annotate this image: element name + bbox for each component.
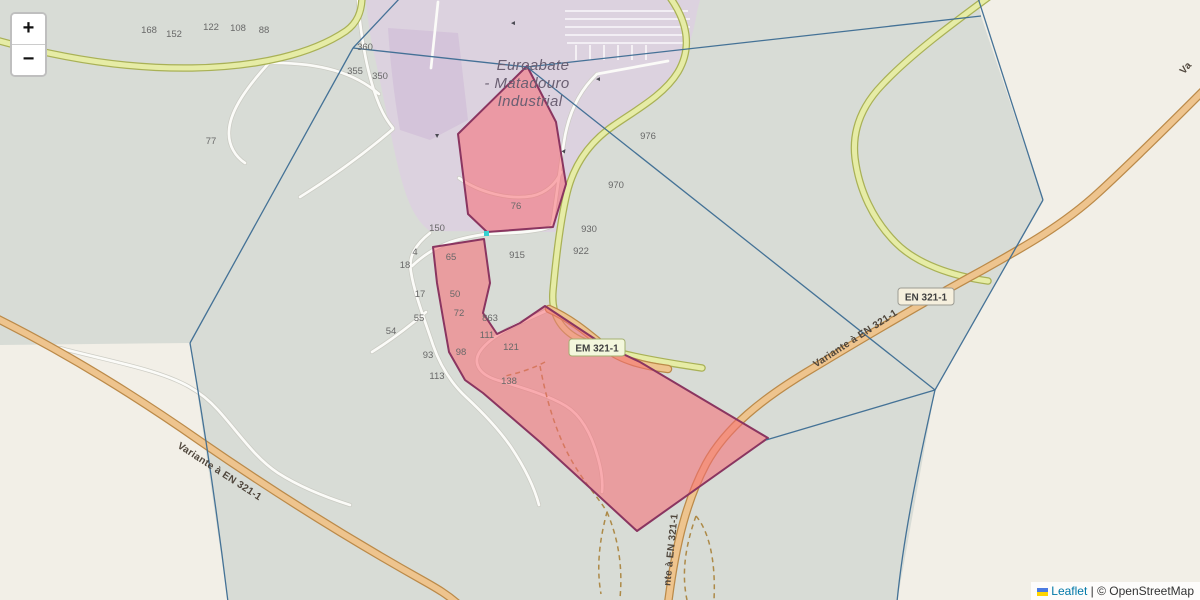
attribution-separator: |	[1087, 584, 1097, 598]
road-ref-badge: EN 321-1	[898, 288, 954, 305]
house-number: 122	[203, 22, 219, 33]
house-number: 65	[446, 252, 457, 263]
map-canvas[interactable]: Euroabate - Matadouro Industrial 1681521…	[0, 0, 1200, 600]
house-number: 98	[456, 347, 467, 358]
house-number: 93	[423, 350, 434, 361]
house-number: 55	[414, 313, 425, 324]
house-number: 970	[608, 180, 624, 191]
road-ref-badge: EM 321-1	[569, 339, 625, 356]
house-number: 922	[573, 246, 589, 257]
ukraine-flag-icon	[1037, 588, 1048, 596]
house-number: 17	[415, 289, 426, 300]
house-number: 72	[454, 308, 465, 319]
house-number: 111	[480, 330, 494, 341]
house-number: 4	[412, 247, 417, 258]
zoom-out-button[interactable]: −	[12, 44, 45, 75]
house-number: 930	[581, 224, 597, 235]
place-label-line1: Euroabate	[497, 57, 570, 74]
zoom-in-button[interactable]: +	[12, 14, 45, 44]
house-number: 360	[357, 42, 373, 53]
road-ref-badge-text: EN 321-1	[905, 293, 948, 304]
house-number: 168	[141, 25, 157, 36]
house-number: 152	[166, 29, 182, 40]
zoom-control: + −	[10, 12, 47, 77]
house-number: 88	[259, 25, 270, 36]
road-name-label: Va	[1178, 60, 1194, 77]
house-number: 54	[386, 326, 397, 337]
map-tiles-and-overlays: Euroabate - Matadouro Industrial 1681521…	[0, 0, 1200, 600]
house-number: 976	[640, 131, 656, 142]
house-number: 108	[230, 23, 246, 34]
house-number: 138	[501, 376, 517, 387]
house-number: 121	[503, 342, 519, 353]
house-number: 113	[429, 371, 444, 382]
place-label-line3: Industrial	[498, 93, 563, 110]
openstreetmap-link[interactable]: © OpenStreetMap	[1097, 584, 1194, 598]
attribution-bar: Leaflet | © OpenStreetMap	[1031, 582, 1200, 600]
house-number: 150	[429, 223, 445, 234]
industrial-building-area	[388, 28, 468, 140]
place-label-line2: - Matadouro	[484, 75, 569, 92]
house-number: 350	[372, 71, 388, 82]
house-number: 863	[482, 313, 498, 324]
house-number: 355	[347, 66, 363, 77]
house-number: 18	[400, 260, 411, 271]
oneway-arrow-icon: ▸	[433, 134, 442, 138]
oneway-arrow-icon: ▸	[596, 75, 600, 84]
house-number: 77	[206, 136, 217, 147]
oneway-arrow-icon: ▸	[511, 19, 515, 28]
house-number: 76	[511, 201, 522, 212]
parcel-vertex-marker	[484, 231, 489, 236]
place-label: Euroabate - Matadouro Industrial	[484, 57, 569, 110]
house-number: 50	[450, 289, 461, 300]
house-number: 915	[509, 250, 525, 261]
leaflet-link[interactable]: Leaflet	[1051, 584, 1087, 598]
road-ref-badge-text: EM 321-1	[575, 344, 619, 355]
